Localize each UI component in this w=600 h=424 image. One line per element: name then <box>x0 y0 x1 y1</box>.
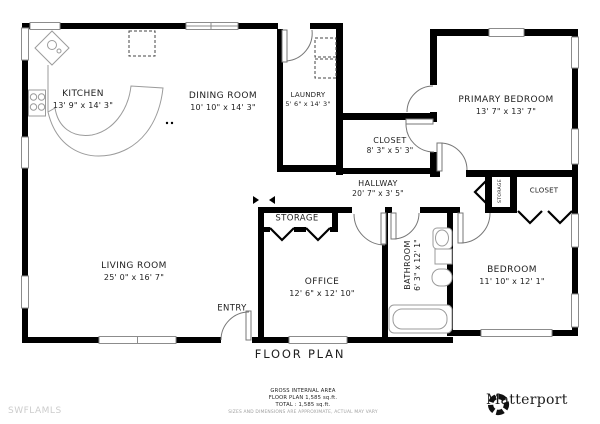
room-dims: 10' 10" x 14' 3" <box>189 103 257 113</box>
area-total-line: TOTAL : 1,585 sq.ft. <box>228 402 377 409</box>
entry-door-arc <box>221 312 249 340</box>
bathroom-door-arc <box>393 213 419 239</box>
laundry-fixtures <box>315 38 336 78</box>
room-dims: 25' 0" x 16' 7" <box>101 273 167 283</box>
room-name: CLOSET <box>367 136 414 146</box>
room-name: PRIMARY BEDROOM <box>458 95 553 107</box>
room-name: STORAGE <box>498 179 504 203</box>
dryer <box>315 59 336 78</box>
area-heading: GROSS INTERNAL AREA <box>228 388 377 395</box>
opening-markers <box>253 196 275 204</box>
room-dims: 8' 3" x 5' 3" <box>367 146 414 156</box>
primary-exterior-door-arc <box>407 86 433 112</box>
room-name: HALLWAY <box>352 179 404 189</box>
office-door-arc <box>354 214 385 245</box>
bedroom-door-leaf <box>458 213 463 243</box>
primary-door-arc <box>440 143 467 170</box>
room-name: KITCHEN <box>53 89 113 101</box>
refrigerator <box>129 31 155 56</box>
room-name: BATHROOM <box>403 239 413 291</box>
room-name: BEDROOM <box>479 265 545 277</box>
area-floor-line: FLOOR PLAN 1,585 sq.ft. <box>228 395 377 402</box>
entry-label: ENTRY <box>217 303 246 314</box>
room-dims: 13' 7" x 13' 7" <box>458 107 553 117</box>
room-name: LAUNDRY <box>285 91 330 100</box>
room-name: OFFICE <box>289 277 355 289</box>
floor-plan: KITCHEN 13' 9" x 14' 3" DINING ROOM 10' … <box>0 0 600 424</box>
corner-sink <box>35 31 69 65</box>
room-label-kitchen: KITCHEN 13' 9" x 14' 3" <box>53 89 113 111</box>
closet-door-leaf <box>406 119 433 124</box>
room-label-bedroom: BEDROOM 11' 10" x 12' 1" <box>479 265 545 287</box>
room-name: STORAGE <box>275 213 318 224</box>
laundry-door-leaf <box>282 30 287 62</box>
room-name: DINING ROOM <box>189 91 257 103</box>
bedroom-door-arc <box>460 213 490 243</box>
room-label-closet: CLOSET 8' 3" x 5' 3" <box>367 136 414 156</box>
room-label-primary-bedroom: PRIMARY BEDROOM 13' 7" x 13' 7" <box>458 95 553 117</box>
room-dims: 13' 9" x 14' 3" <box>53 101 113 111</box>
sink <box>432 269 452 286</box>
room-dims: 12' 6" x 12' 10" <box>289 289 355 299</box>
room-name: LIVING ROOM <box>101 261 167 273</box>
room-label-bathroom: BATHROOM 6' 3" x 12' 1" <box>403 239 423 291</box>
entry-door-leaf <box>246 311 251 340</box>
room-dims: 20' 7" x 3' 5" <box>352 189 404 199</box>
room-label-storage-room: STORAGE <box>275 213 318 224</box>
bathroom-door-leaf <box>391 213 396 239</box>
room-name: ENTRY <box>217 303 246 314</box>
room-name: CLOSET <box>530 186 558 195</box>
area-summary: GROSS INTERNAL AREA FLOOR PLAN 1,585 sq.… <box>228 388 377 415</box>
area-disclaimer: SIZES AND DIMENSIONS ARE APPROXIMATE, AC… <box>228 410 377 415</box>
office-door-leaf <box>381 213 386 244</box>
matterport-logo: Matterport <box>486 392 568 408</box>
primary-door-leaf <box>437 143 442 171</box>
room-dims: 11' 10" x 12' 1" <box>479 277 545 287</box>
laundry-door-arc <box>287 30 312 61</box>
room-label-dining-room: DINING ROOM 10' 10" x 14' 3" <box>189 91 257 113</box>
washer <box>315 38 336 57</box>
room-label-living-room: LIVING ROOM 25' 0" x 16' 7" <box>101 261 167 283</box>
room-label-bedroom-closet: CLOSET <box>530 186 558 195</box>
vanity-counter <box>435 249 452 264</box>
room-label-storage-closet: STORAGE <box>498 179 504 203</box>
room-label-hallway: HALLWAY 20' 7" x 3' 5" <box>352 179 404 199</box>
room-dims: 6' 3" x 12' 1" <box>413 239 423 291</box>
mls-watermark: SWFLAMLS <box>8 406 62 416</box>
room-dims: 5' 6" x 14' 3" <box>285 100 330 108</box>
matterport-icon <box>486 392 511 417</box>
room-label-office: OFFICE 12' 6" x 12' 10" <box>289 277 355 299</box>
room-label-laundry: LAUNDRY 5' 6" x 14' 3" <box>285 91 330 109</box>
floor-plan-title: FLOOR PLAN <box>255 347 345 361</box>
